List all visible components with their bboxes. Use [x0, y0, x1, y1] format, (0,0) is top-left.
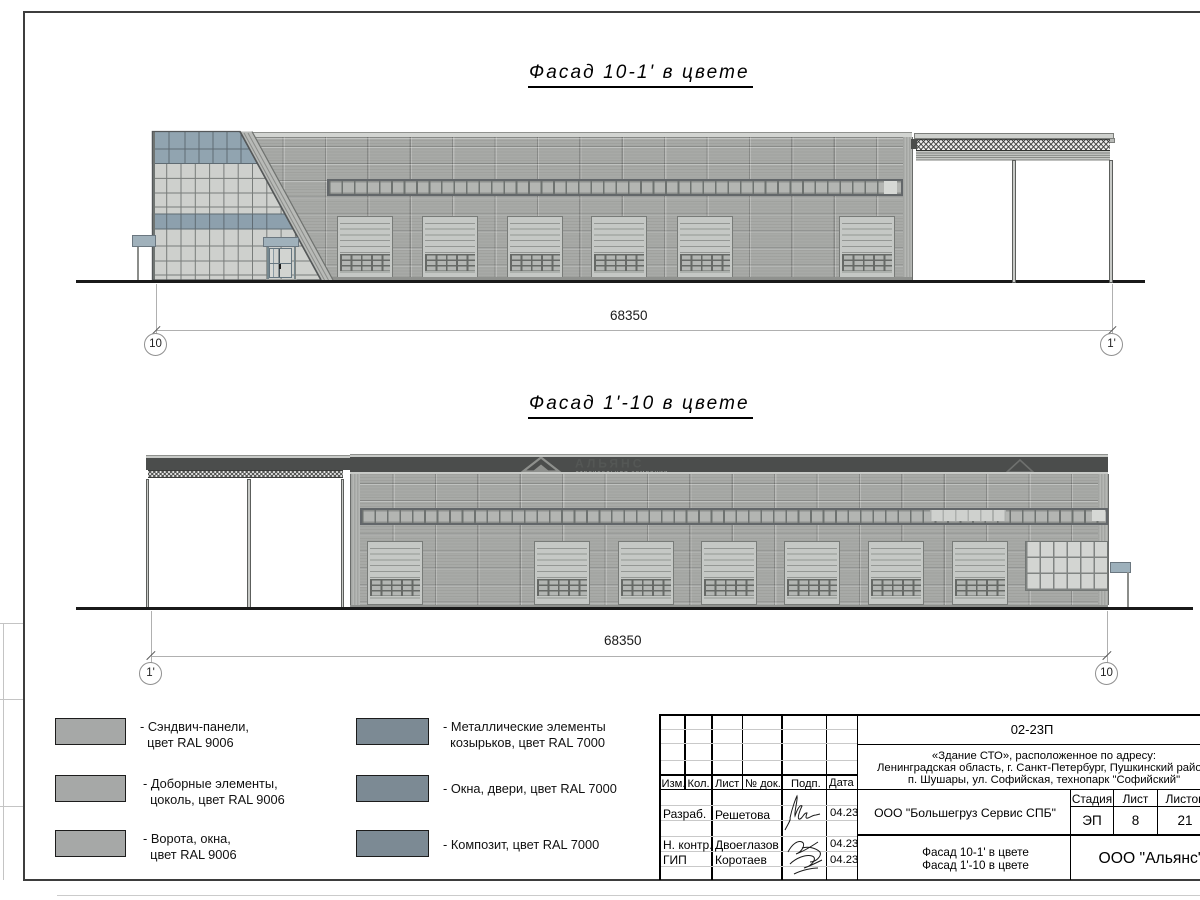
svg-text:АЛЬЯНС: АЛЬЯНС: [575, 457, 644, 471]
